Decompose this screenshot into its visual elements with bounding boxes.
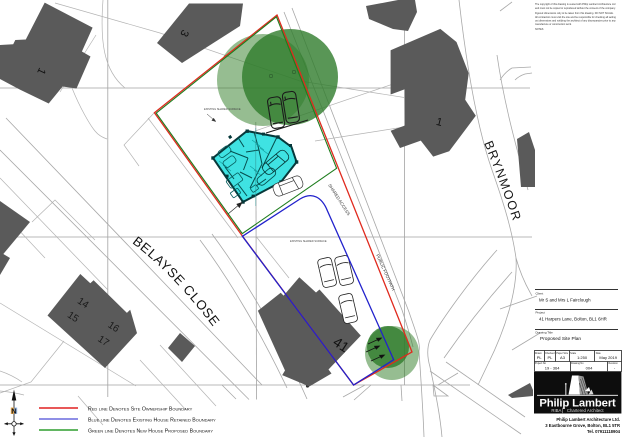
svg-text:3 Eastbourne Grove, Bolton, BL: 3 Eastbourne Grove, Bolton, BL1 5TR (545, 423, 620, 428)
svg-text:Mr S and Mrs L Fairclough: Mr S and Mrs L Fairclough (539, 298, 591, 303)
svg-text:004: 004 (586, 365, 593, 370)
svg-text:NOTES: NOTES (535, 28, 544, 31)
svg-text:EXISTING SHARED SURFACE: EXISTING SHARED SURFACE (290, 239, 327, 243)
svg-text:Project: Project (536, 311, 546, 315)
svg-text:Green line Denotes New House P: Green line Denotes New House Proposed Bo… (88, 429, 213, 435)
svg-text:Scale: Scale (570, 352, 577, 355)
svg-text:N: N (11, 407, 16, 416)
svg-text:Drawing Title: Drawing Title (536, 331, 554, 335)
svg-text:May 2019: May 2019 (599, 355, 617, 360)
svg-text:EXISTING SHARED SURFACE: EXISTING SHARED SURFACE (204, 107, 241, 111)
svg-text:PL: PL (537, 355, 543, 360)
svg-text:Proposed Site Plan: Proposed Site Plan (540, 336, 581, 342)
svg-text:Tel. 07911118904: Tel. 07911118904 (587, 429, 621, 434)
svg-text:1:250: 1:250 (577, 355, 588, 360)
svg-text:A3: A3 (560, 355, 566, 360)
svg-text:Figured dimensions only to be: Figured dimensions only to be taken from… (535, 12, 614, 15)
svg-text:All contractors must visit the: All contractors must visit the site and … (535, 16, 617, 19)
svg-text:19 - 364: 19 - 364 (545, 365, 560, 370)
svg-text:manufacture or construction wo: manufacture or construction work. (535, 23, 572, 26)
svg-text:The copyright of this drawing: The copyright of this drawing is vested … (535, 3, 616, 6)
svg-text:PL: PL (547, 355, 553, 360)
svg-text:Philip Lambert Architecture Lt: Philip Lambert Architecture Ltd. (556, 417, 620, 422)
svg-text:Drawing No: Drawing No (571, 362, 584, 365)
svg-text:RIBA ▏ Chartered Architect: RIBA ▏ Chartered Architect (551, 408, 604, 413)
svg-text:Client: Client (536, 292, 544, 296)
svg-text:Red line Denotes Site Ownershi: Red line Denotes Site Ownership Boundary (88, 407, 193, 413)
svg-text:and must not be copied or repr: and must not be copied or reproduced wit… (535, 7, 616, 10)
svg-text:Blue line Denotes Existing Hou: Blue line Denotes Existing House Retaine… (88, 418, 216, 424)
svg-text:41 Harpers Lane, Bolton, BL1 6: 41 Harpers Lane, Bolton, BL1 6HR (539, 317, 607, 322)
svg-text:out dimensions and notifying t: out dimensions and notifying the archite… (535, 19, 616, 22)
